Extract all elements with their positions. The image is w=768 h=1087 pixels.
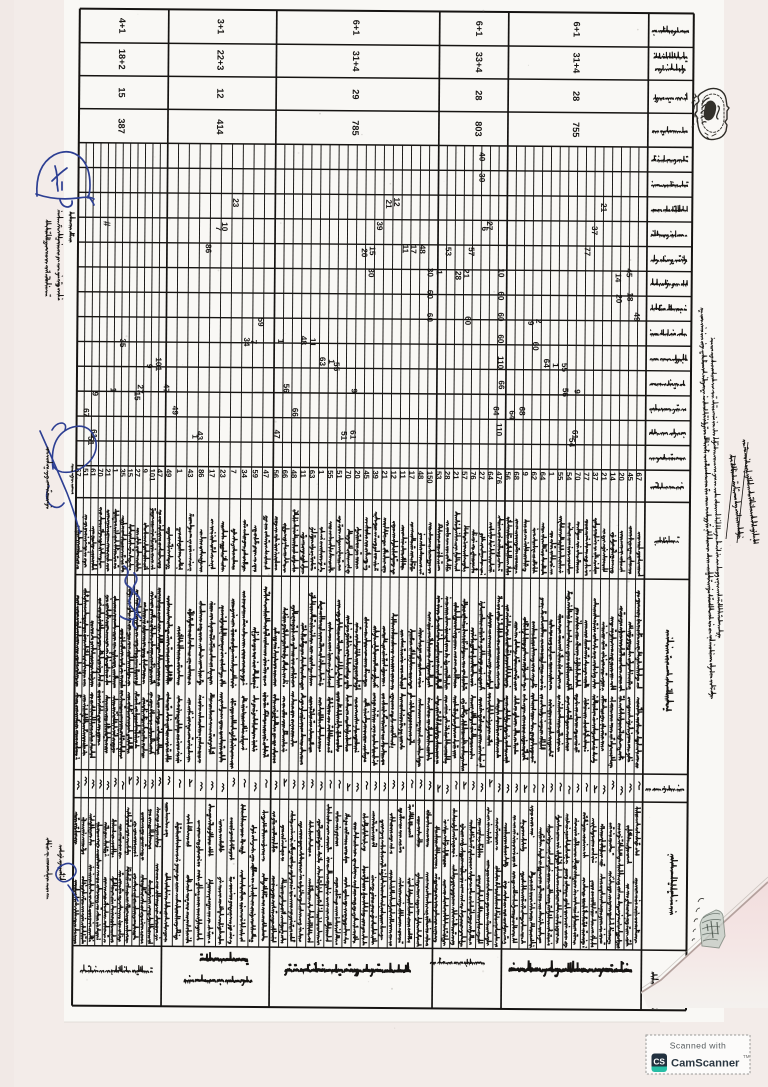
svg-text:64: 64 [486, 471, 495, 480]
svg-text:48: 48 [289, 470, 298, 479]
svg-text:20: 20 [360, 248, 369, 258]
svg-text:9: 9 [526, 321, 535, 326]
svg-text:39: 39 [375, 221, 384, 231]
svg-text:28: 28 [571, 91, 581, 101]
svg-text:Scanned with: Scanned with [670, 1041, 726, 1051]
svg-text:785: 785 [350, 120, 360, 135]
svg-text:6+1: 6+1 [474, 21, 484, 37]
svg-text:21: 21 [599, 472, 608, 481]
svg-text:30: 30 [367, 268, 376, 278]
svg-text:21: 21 [380, 471, 389, 480]
svg-text:9: 9 [521, 472, 530, 476]
svg-text:3+1: 3+1 [216, 19, 226, 35]
svg-text:47: 47 [162, 384, 171, 394]
svg-text:20: 20 [353, 470, 362, 479]
svg-text:55: 55 [326, 470, 335, 479]
svg-text:18: 18 [625, 292, 634, 302]
svg-text:48: 48 [416, 471, 425, 480]
svg-text:17: 17 [407, 471, 416, 480]
svg-text:54: 54 [564, 472, 573, 481]
svg-text:55: 55 [560, 363, 569, 373]
svg-text:23: 23 [231, 198, 240, 208]
svg-text:66: 66 [497, 380, 506, 390]
svg-text:56: 56 [561, 388, 570, 398]
svg-text:14: 14 [608, 472, 617, 481]
svg-text:31+4: 31+4 [571, 52, 581, 74]
svg-text:37: 37 [591, 472, 600, 481]
svg-text:60: 60 [425, 290, 434, 300]
svg-text:#: # [101, 221, 112, 227]
svg-text:60: 60 [496, 334, 505, 344]
svg-text:110: 110 [496, 356, 505, 370]
svg-text:86: 86 [197, 469, 206, 478]
svg-text:23: 23 [218, 469, 227, 478]
svg-text:76: 76 [469, 471, 478, 480]
svg-text:56: 56 [271, 470, 280, 479]
svg-text:53: 53 [434, 471, 443, 480]
svg-text:51: 51 [339, 431, 348, 441]
svg-text:48: 48 [299, 336, 308, 346]
svg-text:29: 29 [351, 89, 361, 99]
svg-text:28: 28 [474, 90, 484, 100]
svg-text:77: 77 [582, 472, 591, 481]
svg-text:56: 56 [282, 384, 291, 394]
svg-text:7: 7 [229, 469, 238, 473]
svg-text:62: 62 [529, 472, 538, 481]
svg-text:37: 37 [590, 226, 599, 236]
svg-text:755: 755 [571, 122, 581, 137]
svg-text:49: 49 [632, 312, 641, 322]
svg-text:59: 59 [251, 469, 260, 478]
svg-text:35: 35 [118, 338, 127, 348]
svg-text:14: 14 [614, 273, 623, 283]
svg-text:20: 20 [614, 294, 623, 304]
svg-text:53: 53 [444, 247, 453, 257]
svg-text:7: 7 [214, 226, 223, 231]
svg-text:48: 48 [418, 245, 427, 255]
svg-text:45: 45 [362, 470, 371, 479]
svg-text:61: 61 [348, 430, 357, 440]
svg-text:60: 60 [463, 316, 472, 326]
svg-text:110: 110 [494, 423, 503, 437]
svg-text:49: 49 [164, 469, 173, 478]
svg-text:150: 150 [425, 471, 434, 484]
svg-text:39: 39 [371, 470, 380, 479]
svg-text:59: 59 [256, 317, 265, 327]
svg-text:11: 11 [401, 245, 410, 254]
svg-text:CamScanner: CamScanner [671, 1058, 740, 1070]
svg-text:66: 66 [290, 408, 299, 418]
svg-text:40: 40 [477, 152, 486, 162]
svg-text:9: 9 [91, 391, 100, 396]
svg-text:10: 10 [497, 268, 506, 278]
svg-text:34: 34 [242, 337, 251, 347]
svg-text:64: 64 [507, 410, 516, 420]
svg-text:12: 12 [215, 88, 225, 98]
svg-text:47: 47 [155, 469, 164, 478]
svg-text:55: 55 [332, 362, 341, 372]
svg-text:55: 55 [556, 472, 565, 481]
svg-text:33+4: 33+4 [474, 52, 484, 74]
svg-text:30: 30 [426, 268, 435, 278]
svg-text:15: 15 [117, 87, 127, 97]
svg-text:60: 60 [531, 342, 540, 352]
svg-text:1: 1 [551, 363, 560, 368]
svg-text:67: 67 [634, 472, 643, 481]
svg-text:47: 47 [272, 430, 281, 440]
svg-text:9: 9 [145, 364, 154, 369]
svg-text:57: 57 [467, 247, 476, 257]
svg-text:54: 54 [567, 438, 576, 448]
svg-text:45: 45 [625, 268, 634, 278]
svg-text:6: 6 [480, 226, 489, 231]
svg-text:30: 30 [477, 173, 486, 183]
svg-text:414: 414 [215, 119, 225, 135]
svg-text:27: 27 [477, 471, 486, 480]
svg-text:68: 68 [512, 472, 521, 481]
svg-text:11: 11 [308, 338, 317, 347]
svg-text:47: 47 [261, 470, 270, 479]
svg-text:1: 1 [276, 339, 285, 344]
svg-text:60: 60 [425, 313, 434, 323]
svg-text:21: 21 [384, 199, 393, 209]
svg-text:18+2: 18+2 [117, 49, 127, 70]
svg-text:57: 57 [460, 471, 469, 480]
svg-text:9: 9 [573, 389, 582, 394]
svg-text:34: 34 [240, 469, 249, 478]
svg-text:11: 11 [299, 470, 308, 479]
svg-text:4+1: 4+1 [117, 18, 127, 34]
svg-text:9: 9 [350, 388, 359, 393]
svg-text:49: 49 [170, 406, 179, 416]
svg-text:387: 387 [116, 118, 126, 133]
svg-text:63: 63 [318, 357, 327, 367]
svg-text:64: 64 [542, 359, 551, 369]
svg-text:20: 20 [617, 472, 626, 481]
svg-text:6+1: 6+1 [572, 21, 582, 37]
svg-text:1: 1 [109, 388, 118, 393]
svg-text:11: 11 [398, 471, 407, 480]
svg-text:70: 70 [573, 472, 582, 481]
svg-text:68: 68 [517, 406, 526, 416]
svg-text:21: 21 [599, 203, 608, 213]
svg-text:70: 70 [344, 470, 353, 479]
svg-text:1: 1 [190, 434, 199, 439]
svg-text:56: 56 [503, 471, 512, 480]
svg-text:476: 476 [495, 471, 504, 484]
svg-text:31+4: 31+4 [351, 51, 361, 73]
svg-text:17: 17 [207, 469, 216, 478]
svg-text:21: 21 [451, 471, 460, 480]
svg-text:CS: CS [653, 1057, 665, 1067]
svg-text:6+1: 6+1 [351, 20, 361, 36]
svg-text:51: 51 [335, 470, 344, 479]
svg-text:TM: TM [743, 1054, 750, 1059]
svg-text:12: 12 [389, 471, 398, 480]
svg-text:64: 64 [491, 406, 500, 416]
svg-text:64: 64 [538, 472, 547, 481]
svg-text:66: 66 [280, 470, 289, 479]
svg-text:67: 67 [81, 408, 90, 418]
svg-text:28: 28 [443, 471, 452, 480]
svg-text:1: 1 [435, 270, 444, 275]
svg-text:43: 43 [186, 469, 195, 478]
svg-text:77: 77 [583, 247, 592, 257]
svg-text:60: 60 [496, 312, 505, 322]
svg-text:63: 63 [308, 470, 317, 479]
svg-text:22+3: 22+3 [215, 50, 225, 71]
svg-text:28: 28 [454, 271, 463, 281]
svg-text:15: 15 [133, 391, 142, 401]
svg-text:101: 101 [154, 357, 163, 371]
svg-text:86: 86 [204, 244, 213, 254]
svg-text:45: 45 [626, 472, 635, 481]
svg-text:803: 803 [473, 121, 483, 136]
svg-text:60: 60 [496, 291, 505, 301]
